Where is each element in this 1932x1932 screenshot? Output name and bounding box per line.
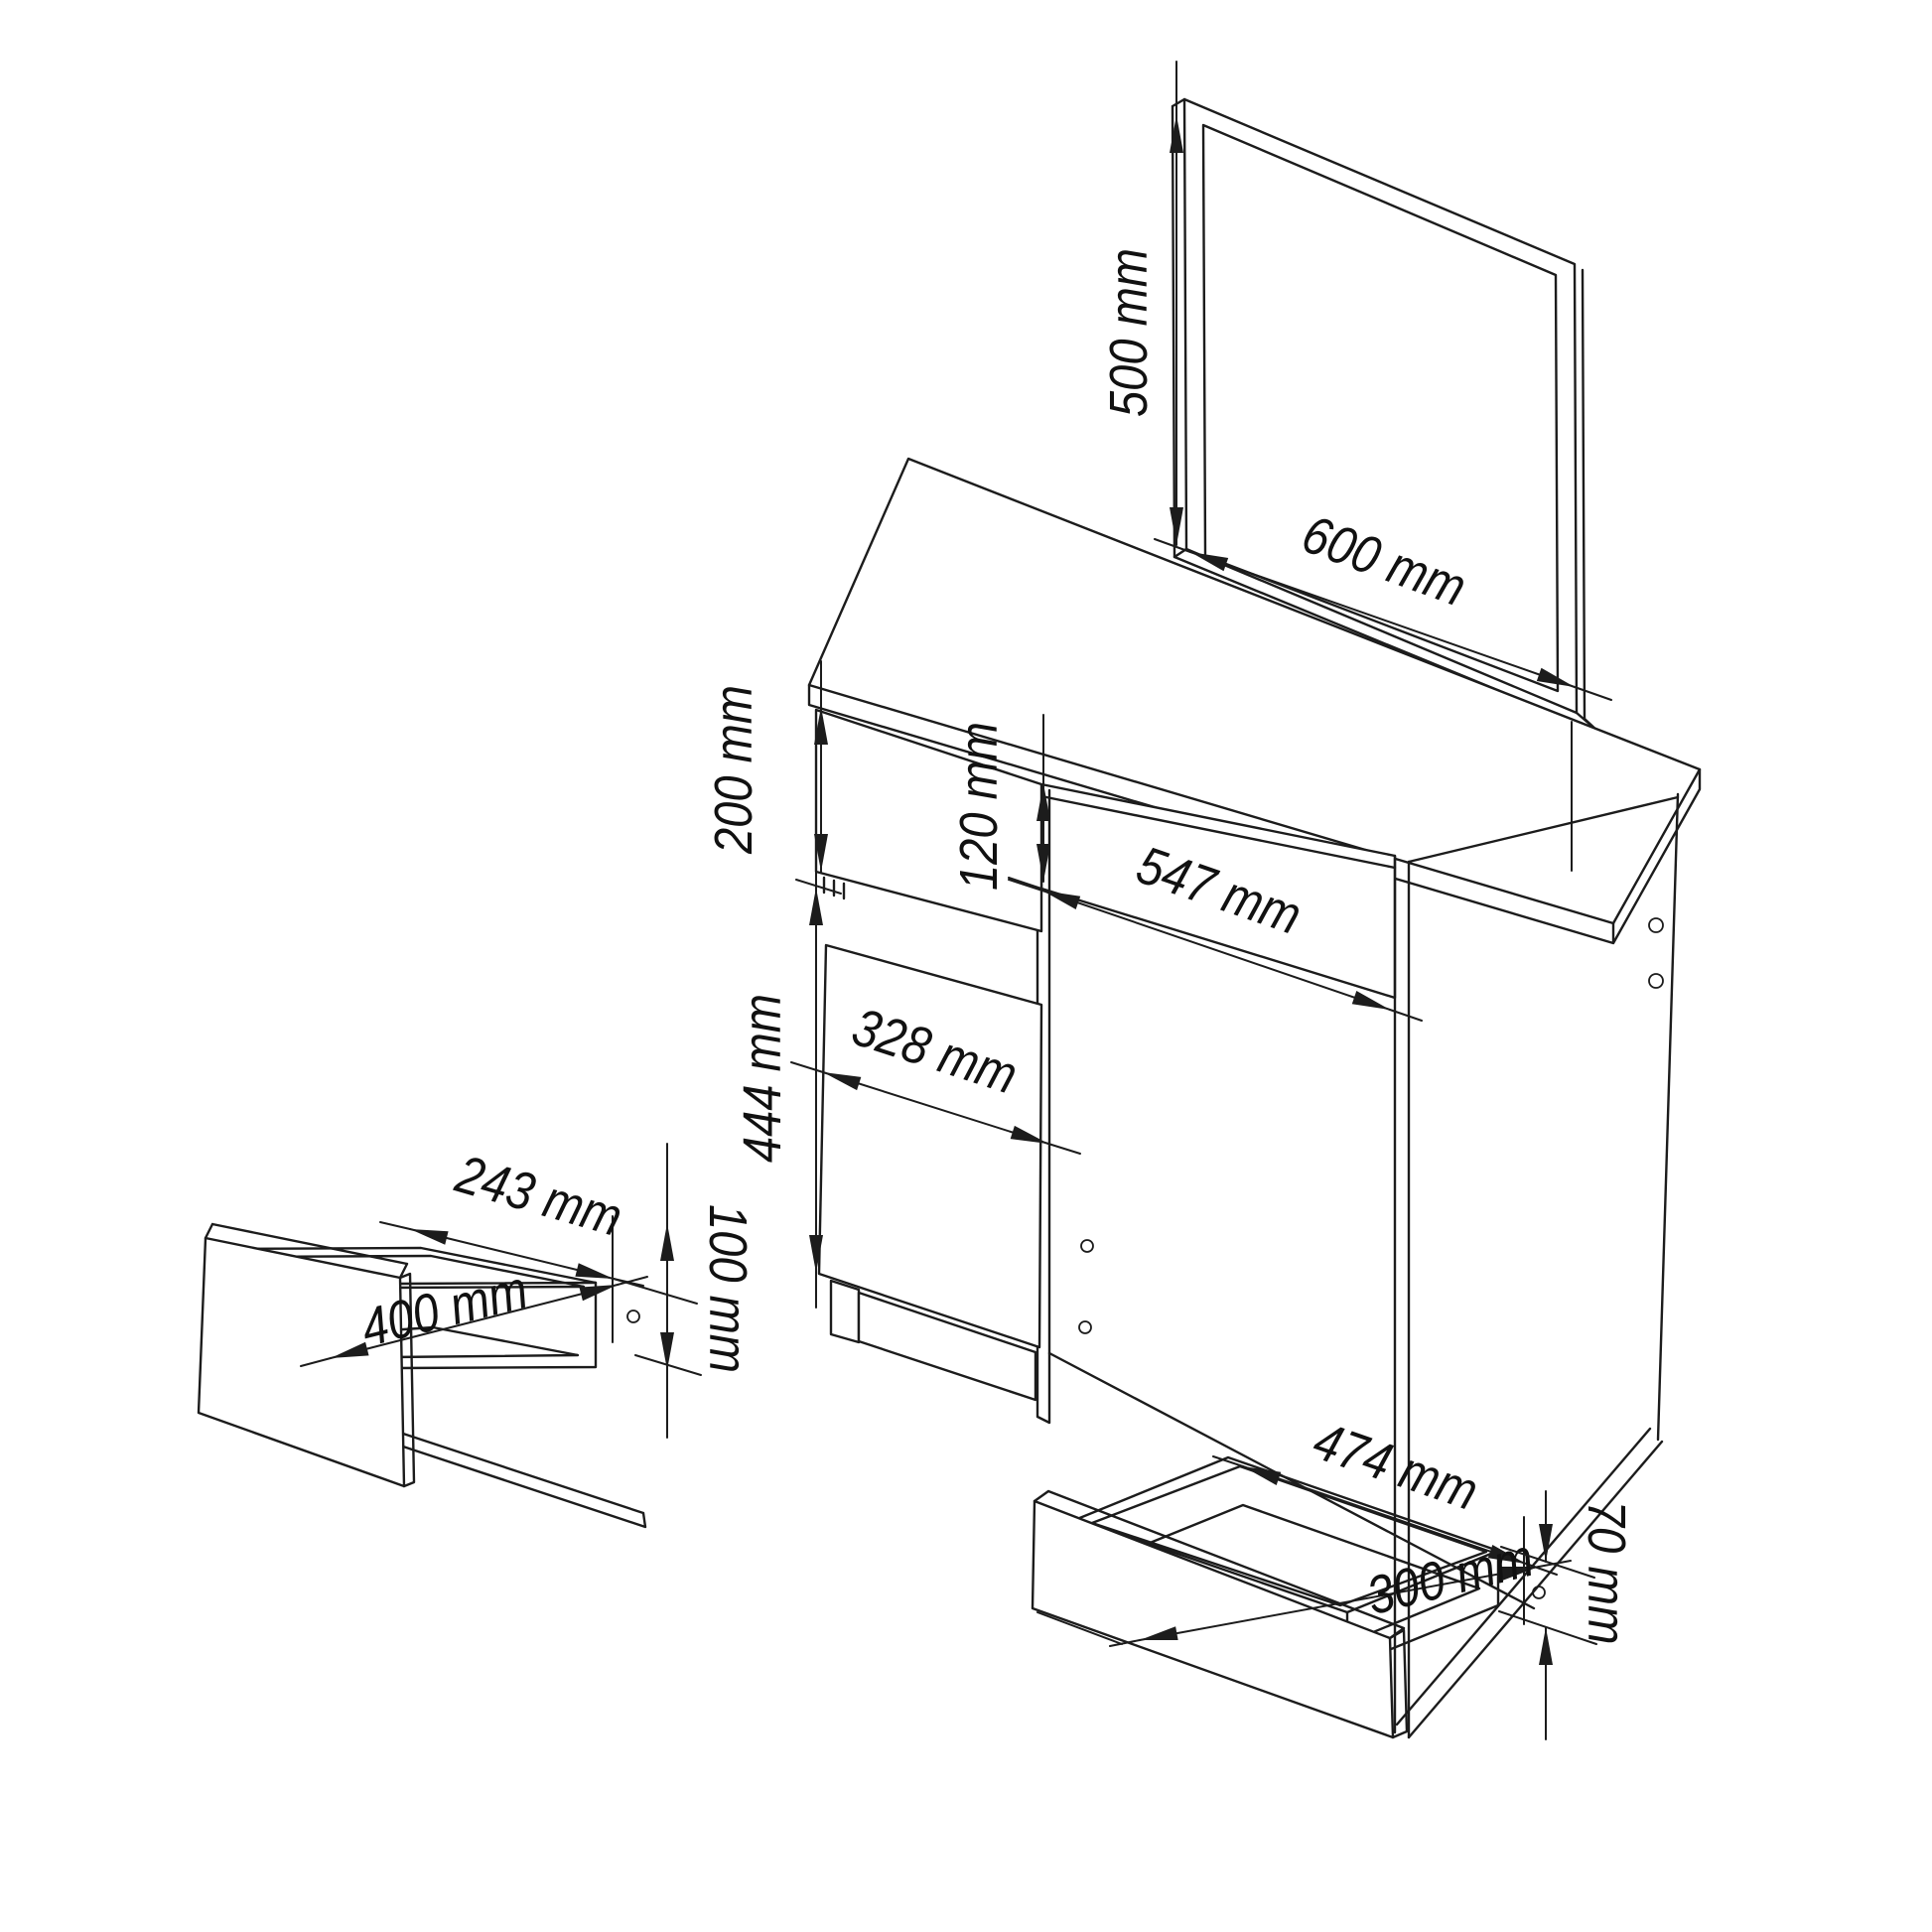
small-drawer-bottom-rails xyxy=(397,1432,645,1527)
dim-label: 444 mm xyxy=(733,994,792,1163)
dim-mirror-height: 500 mm xyxy=(1099,62,1176,545)
small-drawer-front-face xyxy=(199,1238,404,1486)
right-panel-back-edge xyxy=(1658,794,1678,1440)
pedestal-foot xyxy=(831,1281,859,1342)
dim-extension-line xyxy=(614,1144,701,1438)
pilot-hole-icon xyxy=(1081,1240,1093,1252)
dressing-table-dimension-diagram: 500 mm 600 mm 200 mm 120 mm 547 mm xyxy=(0,0,1932,1932)
dim-small-drawer-height: 100 mm xyxy=(614,1144,758,1438)
pilot-hole-icon xyxy=(627,1311,639,1322)
pilot-hole-icon xyxy=(1649,974,1663,988)
drawer-runner-ticks xyxy=(824,878,844,898)
bottom-drawer-front-face xyxy=(1033,1501,1393,1737)
dim-top-drawer-height: 200 mm xyxy=(704,661,821,872)
bottom-drawer-front-panel xyxy=(1033,1491,1407,1737)
dim-label: 70 mm xyxy=(1577,1501,1636,1645)
technical-drawing-page: 500 mm 600 mm 200 mm 120 mm 547 mm xyxy=(0,0,1932,1932)
mirror-frame-right-band xyxy=(1583,270,1598,732)
dim-label: 243 mm xyxy=(449,1144,628,1248)
dim-label: 100 mm xyxy=(698,1204,758,1373)
dim-label: 200 mm xyxy=(704,685,763,855)
dim-label: 120 mm xyxy=(949,722,1009,891)
pilot-hole-icon xyxy=(1649,918,1663,932)
pilot-hole-icon xyxy=(1533,1587,1545,1598)
pilot-hole-icon xyxy=(1079,1321,1091,1333)
dim-label: 300 mm xyxy=(1361,1528,1539,1626)
dim-label: 500 mm xyxy=(1099,248,1159,417)
